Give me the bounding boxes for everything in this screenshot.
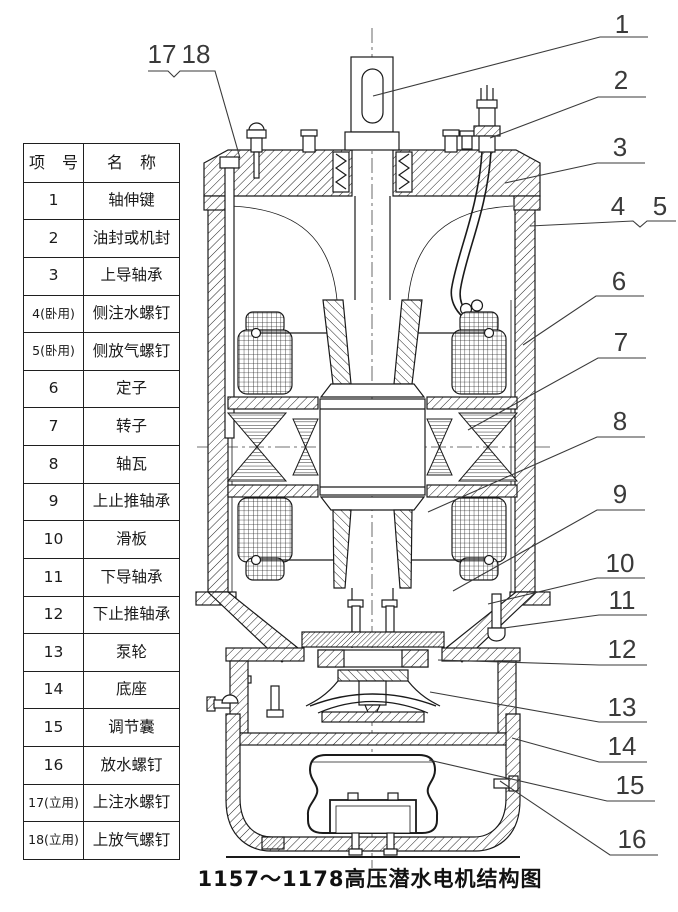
- callout-label-9: 9: [613, 479, 627, 509]
- drawing-shape: [445, 136, 457, 152]
- cable-conductor: [472, 300, 483, 311]
- drawing-shape: [427, 485, 517, 497]
- thrust-plate: [302, 632, 444, 647]
- drawing-shape: [479, 136, 495, 152]
- drawing-shape: [303, 136, 315, 152]
- drawing-shape: [348, 793, 358, 800]
- leader-line-1: [373, 37, 648, 96]
- drawing-shape: [301, 130, 317, 136]
- leader-line-11: [504, 615, 647, 628]
- drawing-shape: [384, 849, 397, 855]
- drawing-shape: [355, 196, 390, 300]
- drawing-shape: [459, 413, 517, 447]
- leader-line-4: [530, 221, 676, 227]
- drawing-shape: [318, 650, 344, 667]
- callout-label-7: 7: [614, 327, 628, 357]
- callout-label-3: 3: [613, 132, 627, 162]
- impeller-top: [338, 670, 408, 681]
- drawing-shape: [485, 556, 494, 565]
- rotor: [228, 397, 517, 497]
- drawing-shape: [228, 447, 286, 481]
- guide-bearing-bolt: [492, 594, 501, 628]
- callout-label-6: 6: [612, 266, 626, 296]
- drawing-shape: [220, 157, 239, 168]
- drawing-shape: [228, 413, 286, 447]
- drawing-shape: [322, 712, 424, 722]
- callout-label-17: 17: [148, 39, 177, 69]
- drawing-caption: 1157～1178高压潜水电机结构图: [150, 863, 590, 893]
- drawing-shape: [387, 833, 394, 849]
- drawing-shape: [488, 628, 505, 641]
- callout-label-12: 12: [608, 634, 637, 664]
- drawing-shape: [293, 447, 318, 475]
- drawing-shape: [485, 329, 494, 338]
- drawing-shape: [238, 330, 292, 394]
- drawing-shape: [252, 556, 261, 565]
- drawing-shape: [226, 648, 304, 661]
- drawing-shape: [333, 510, 351, 588]
- drawing-shape: [228, 397, 318, 409]
- callout-label-4: 4: [611, 191, 625, 221]
- drawing-shape: [394, 510, 412, 588]
- drawing-shape: [474, 126, 500, 136]
- rotor-core: [320, 399, 425, 495]
- drawing-shape: [479, 108, 495, 126]
- drawing-shape: [393, 150, 540, 196]
- drawing-shape: [427, 419, 452, 447]
- cable-entry: [451, 85, 500, 323]
- drawing-shape: [228, 485, 318, 497]
- drawing-shape: [462, 136, 472, 149]
- drawing-shape: [251, 138, 262, 152]
- drawing-shape: [452, 330, 506, 394]
- leader-line-17: [148, 71, 240, 158]
- callout-label-10: 10: [606, 548, 635, 578]
- callout-label-11: 11: [609, 585, 636, 615]
- drawing-shape: [293, 419, 318, 447]
- drawing-shape: [388, 793, 398, 800]
- drawing-shape: [230, 206, 337, 300]
- drawing-shape: [442, 648, 520, 661]
- drawing-shape: [196, 28, 552, 868]
- motor-cross-section-drawing: 123456789101112131415161718: [0, 0, 678, 912]
- drawing-shape: [427, 447, 452, 475]
- drawing-shape: [394, 300, 422, 384]
- drawing-shape: [352, 606, 360, 632]
- drawing-shape: [321, 497, 424, 510]
- drawing-shape: [271, 686, 279, 710]
- callout-label-8: 8: [613, 406, 627, 436]
- callout-label-13: 13: [608, 692, 637, 722]
- upper-shaft-sleeve: [321, 300, 424, 397]
- drawing-shape: [345, 132, 399, 150]
- drawing-shape: [321, 384, 424, 397]
- drawing-shape: [477, 100, 497, 108]
- pump-base-plate: [232, 733, 514, 745]
- drawing-shape: [481, 85, 493, 100]
- drawing-shape: [349, 849, 362, 855]
- callout-label-1: 1: [615, 9, 629, 39]
- callout-label-2: 2: [614, 65, 628, 95]
- drawing-shape: [427, 397, 517, 409]
- drawing-shape: [402, 650, 428, 667]
- drawing-shape: [443, 130, 459, 136]
- drawing-shape: [247, 130, 266, 138]
- drawing-shape: [238, 498, 292, 562]
- drawing-shape: [252, 329, 261, 338]
- drawing-shape: [514, 196, 540, 210]
- drawing-shape: [267, 710, 283, 717]
- drawing-shape: [254, 152, 259, 178]
- drawing-shape: [262, 837, 284, 849]
- callout-label-14: 14: [608, 731, 637, 761]
- drawing-shape: [336, 806, 410, 833]
- callout-label-5: 5: [653, 191, 667, 221]
- drawing-shape: [352, 833, 359, 849]
- vent-screw-dome: [249, 123, 264, 130]
- drawing-shape: [386, 606, 394, 632]
- drawing-shape: [460, 131, 474, 136]
- drawing-shape: [323, 300, 351, 384]
- keyway: [362, 69, 383, 123]
- callout-label-16: 16: [618, 824, 647, 854]
- lower-shaft-sleeve: [321, 497, 424, 648]
- callout-label-15: 15: [616, 770, 645, 800]
- callout-label-18: 18: [182, 39, 211, 69]
- drawing-shape: [452, 498, 506, 562]
